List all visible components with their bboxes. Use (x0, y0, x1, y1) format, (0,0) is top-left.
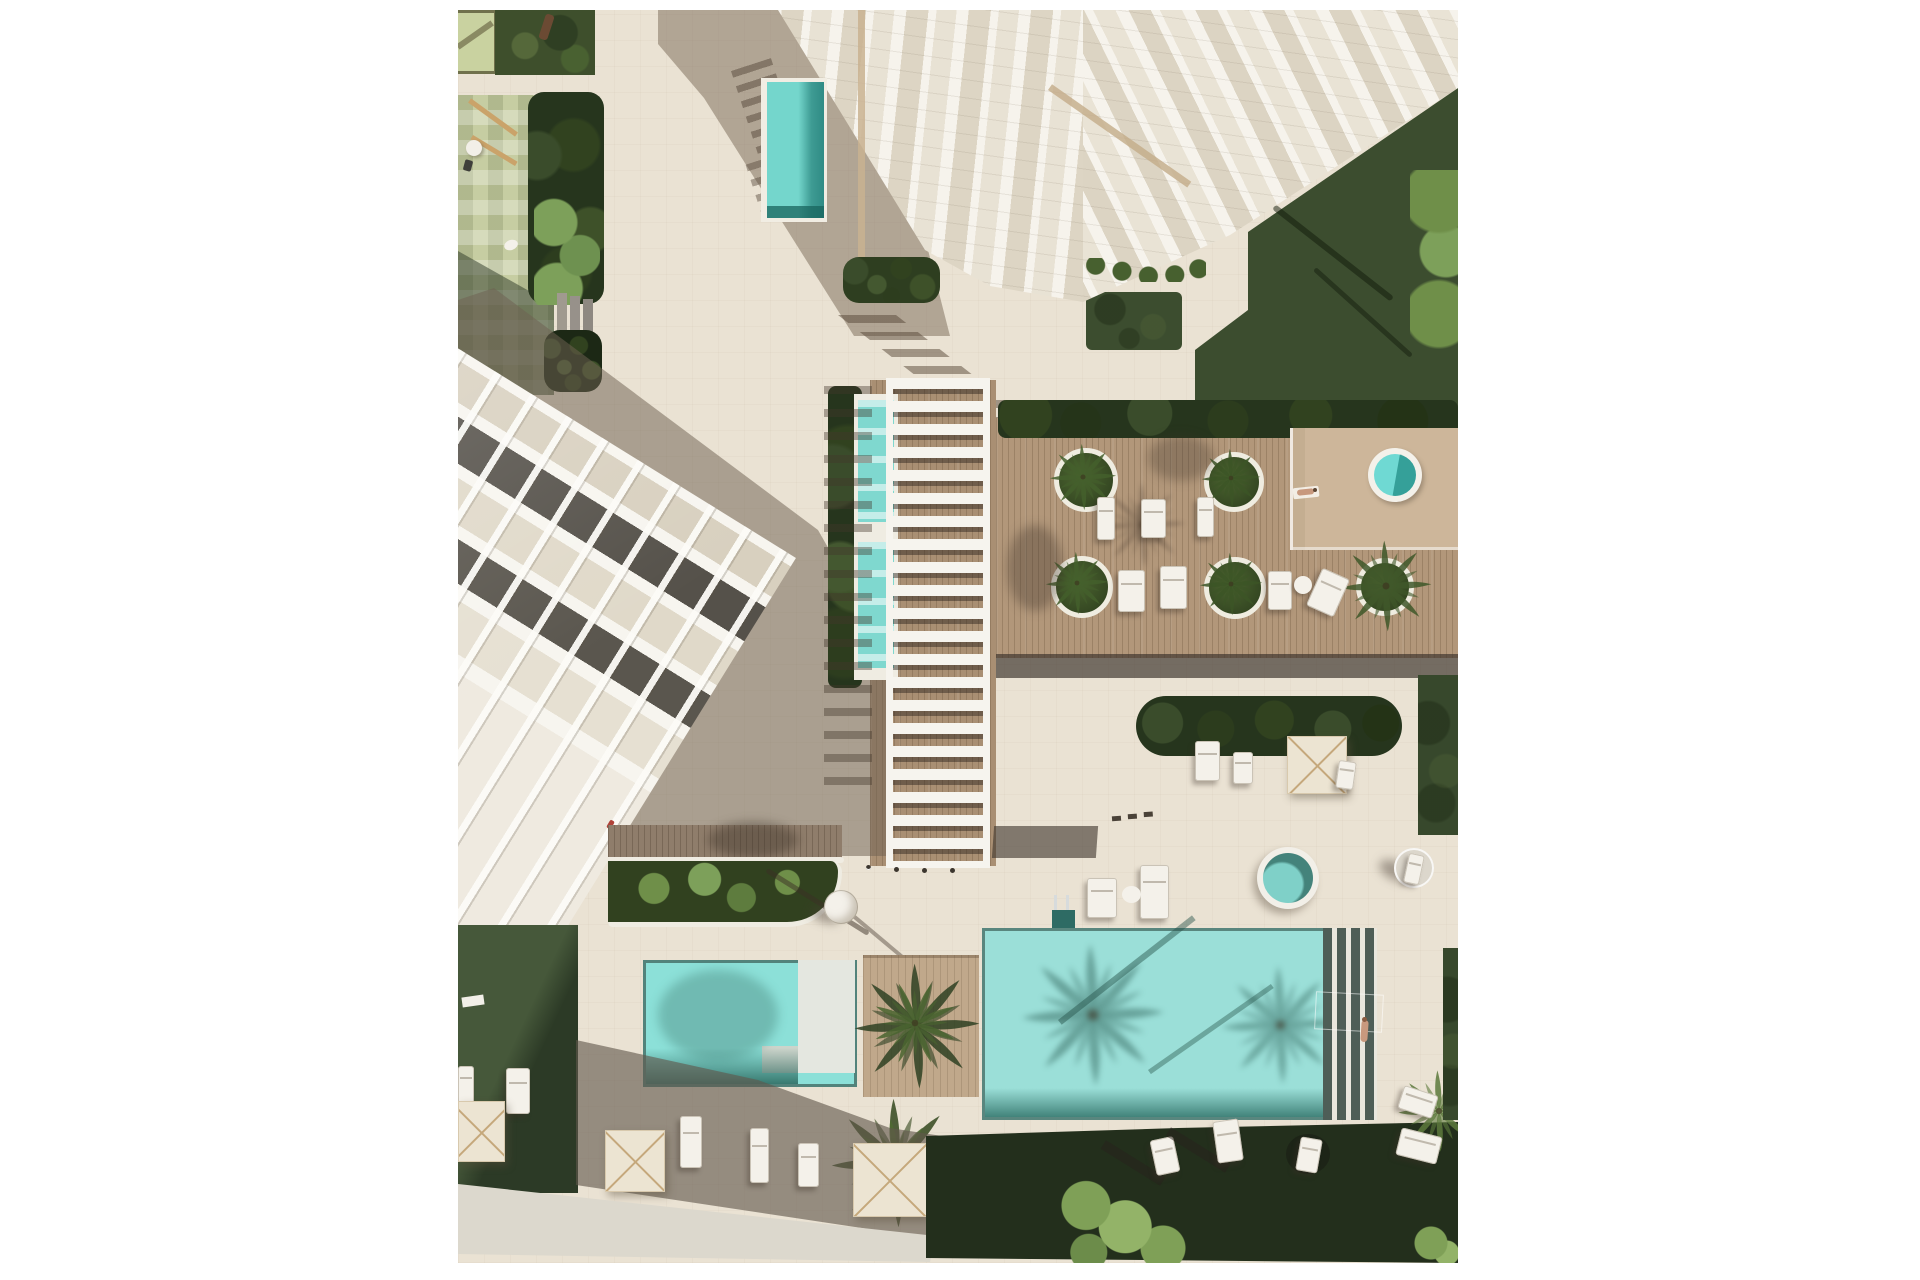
plaza-hot-tub-water (1263, 853, 1313, 903)
sun-lounger (1335, 760, 1357, 790)
square-parasol (853, 1143, 927, 1217)
render-page (0, 0, 1920, 1280)
sun-lounger (680, 1116, 702, 1168)
pool-ladder-notch (1052, 910, 1075, 928)
planter-palm (1338, 538, 1434, 634)
tower-column-accent (858, 10, 865, 262)
step-marker (1112, 816, 1121, 822)
bollard-light (950, 868, 955, 873)
sun-lounger (798, 1143, 819, 1187)
sun-lounger (1195, 741, 1220, 781)
bollard-light (894, 867, 899, 872)
tower-base-bed (843, 257, 940, 303)
sun-lounger (1118, 570, 1145, 612)
palm-shadow-on-boardwalk (708, 822, 798, 858)
swimmer-head (1362, 1017, 1367, 1022)
round-side-table (1122, 886, 1141, 903)
leaf-cluster (1413, 1225, 1458, 1263)
lawn-under-tower (1086, 292, 1182, 350)
sun-lounger (1197, 497, 1214, 537)
sun-lounger (1140, 865, 1169, 919)
sun-lounger (1097, 497, 1115, 540)
sun-lounger (1087, 878, 1117, 918)
right-grass-strip (1418, 675, 1458, 835)
sun-lounger (1268, 571, 1292, 610)
sun-lounger (750, 1128, 769, 1183)
square-parasol (605, 1130, 665, 1192)
square-parasol (458, 1101, 505, 1162)
deck-bottom-edge (996, 654, 1458, 678)
round-side-table (1294, 576, 1312, 594)
sun-lounger (1233, 752, 1253, 784)
main-pool-deep-end (985, 1088, 1325, 1117)
palm-shadow-in-pool (1018, 940, 1168, 1090)
pergola-slat-shadows (824, 386, 872, 786)
sun-lounger (458, 1066, 474, 1104)
shadow-on-kids-pool (658, 970, 778, 1060)
hedge-leaf-plants (534, 195, 600, 305)
bench (557, 293, 567, 333)
sunbather-head (1313, 488, 1317, 492)
right-edge-leaves (1410, 170, 1458, 350)
planter-palm (1198, 551, 1264, 617)
palm-shadow-on-deck (1007, 525, 1063, 611)
round-table (824, 890, 858, 924)
sun-lounger (1160, 566, 1187, 609)
pergola-end-shadow (992, 826, 1098, 858)
mini-parasol (466, 140, 482, 156)
lap-pool-deep-lip (767, 206, 824, 218)
grass-strip-right-of-pool (1443, 948, 1458, 1120)
balcony-planter-greens (1086, 258, 1206, 282)
leaf-cluster (1058, 1180, 1198, 1263)
bollard-light (922, 868, 927, 873)
aerial-render-canvas (458, 10, 1458, 1263)
bollard-light (866, 865, 871, 870)
palm-shadow-on-deck (1148, 435, 1214, 481)
sun-lounger (1141, 499, 1166, 538)
sun-lounger (506, 1068, 530, 1114)
sun-lounger (1212, 1118, 1244, 1163)
pergola (886, 378, 990, 868)
lap-pool (767, 82, 824, 218)
deck-hot-tub-water (1374, 454, 1416, 496)
shrub-row (1136, 696, 1402, 756)
kids-pool-sun-shelf (798, 960, 855, 1073)
submerged-lounger-frame (1314, 991, 1384, 1033)
